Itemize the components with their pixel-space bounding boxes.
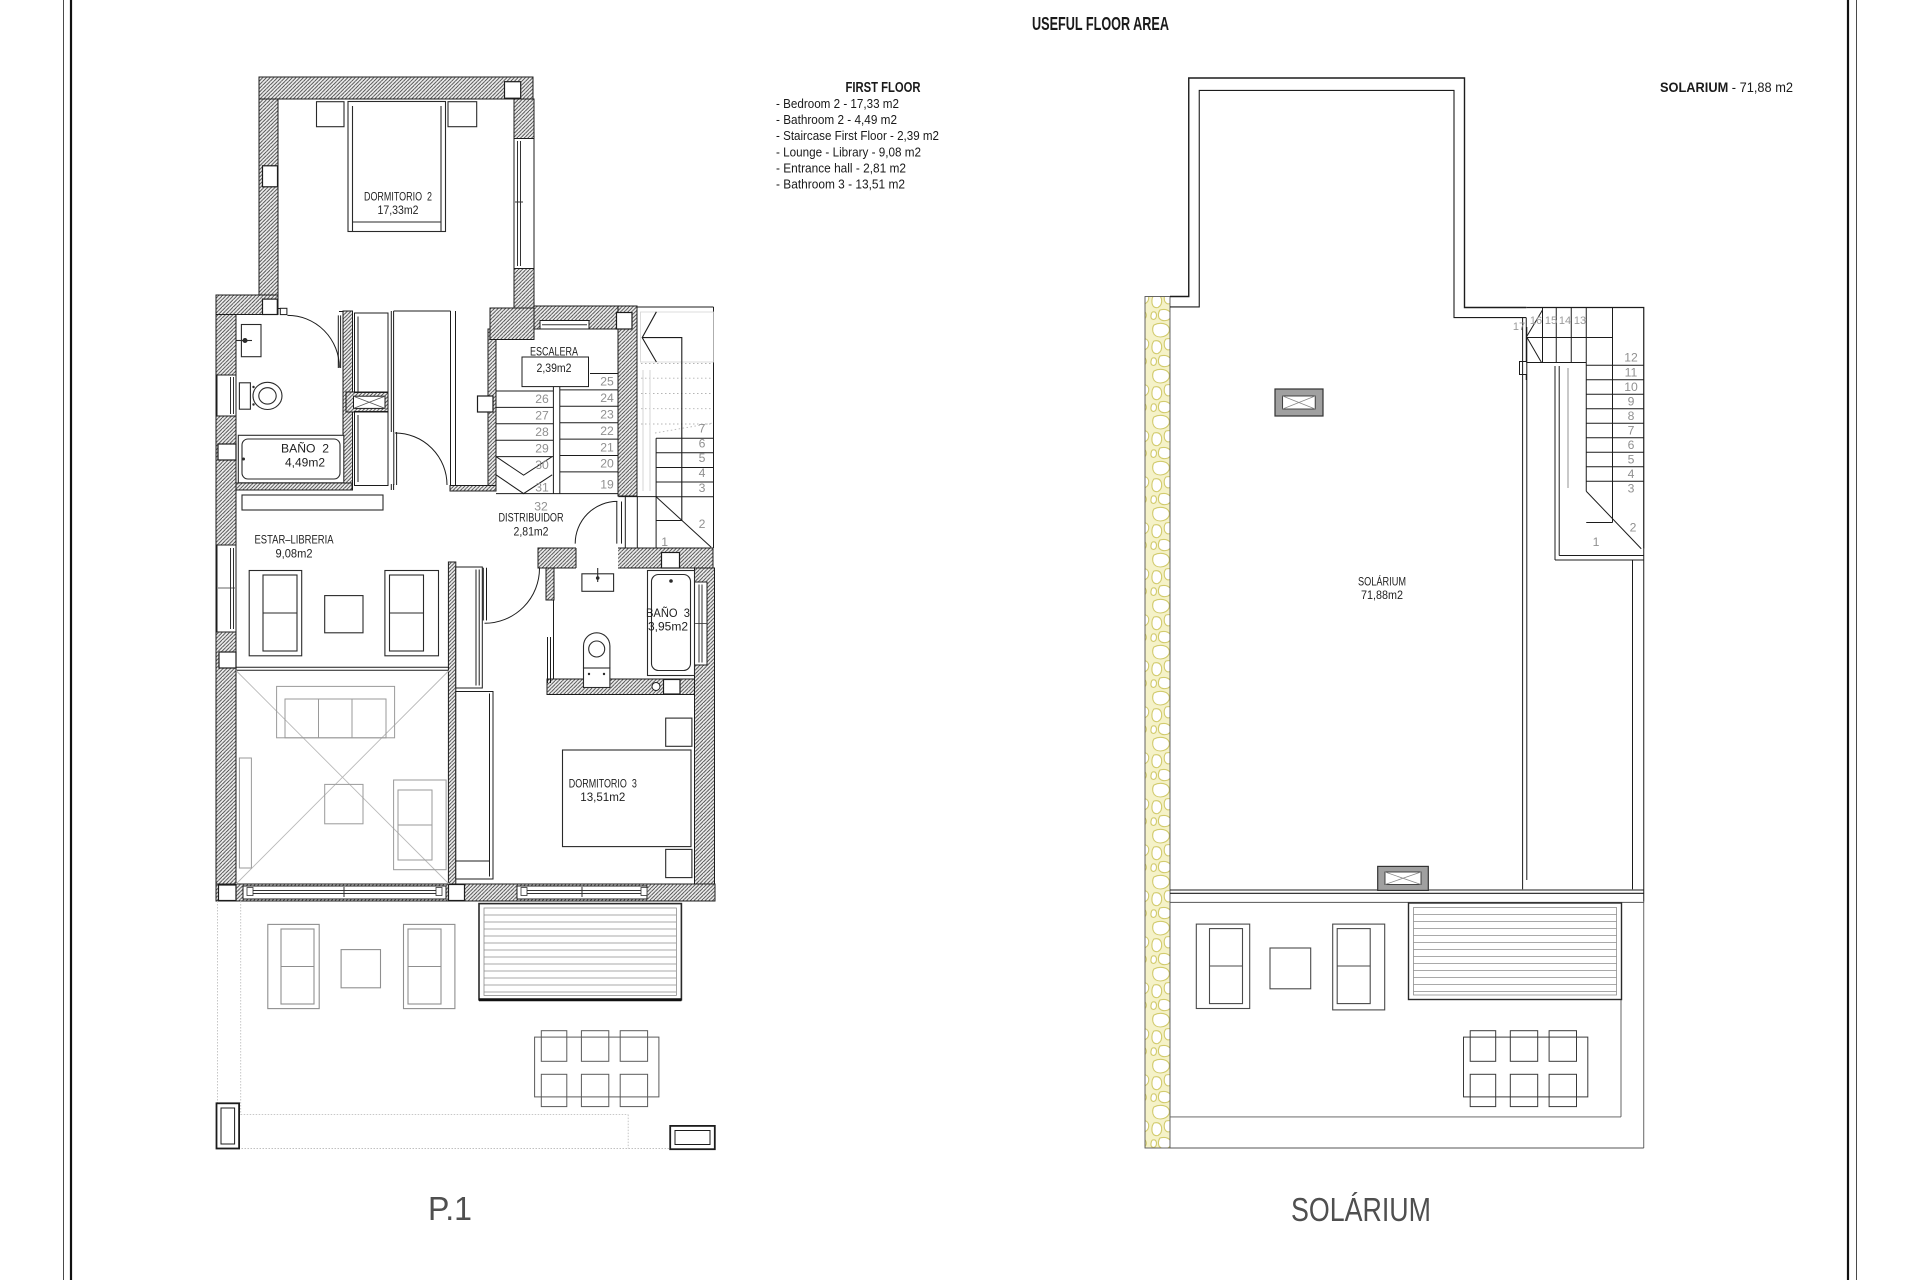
- svg-text:- Staircase First Floor - 2,39: - Staircase First Floor - 2,39 m2: [776, 128, 939, 143]
- svg-text:SOLÁRIUM: SOLÁRIUM: [1358, 574, 1406, 589]
- svg-text:4: 4: [1628, 467, 1635, 481]
- svg-text:3,95m2: 3,95m2: [648, 620, 688, 634]
- svg-text:27: 27: [535, 409, 549, 423]
- svg-text:71,88m2: 71,88m2: [1361, 588, 1403, 602]
- svg-text:4: 4: [699, 466, 706, 480]
- svg-text:24: 24: [600, 391, 614, 405]
- svg-text:26: 26: [535, 392, 549, 406]
- svg-text:31: 31: [535, 481, 549, 495]
- svg-text:21: 21: [600, 440, 614, 454]
- svg-text:BAÑO 2: BAÑO 2: [281, 442, 329, 456]
- svg-text:2: 2: [1630, 521, 1637, 535]
- svg-text:9: 9: [1628, 395, 1635, 409]
- svg-text:P.1: P.1: [428, 1190, 472, 1227]
- svg-text:2,39m2: 2,39m2: [537, 361, 572, 375]
- svg-text:7: 7: [699, 422, 706, 436]
- svg-text:2: 2: [699, 517, 706, 531]
- svg-text:DORMITORIO 2: DORMITORIO 2: [364, 190, 432, 204]
- svg-text:16: 16: [1530, 315, 1542, 327]
- svg-text:13,51m2: 13,51m2: [580, 790, 625, 804]
- svg-text:1: 1: [661, 535, 668, 549]
- svg-text:29: 29: [535, 441, 549, 455]
- svg-text:DISTRIBUIDOR: DISTRIBUIDOR: [499, 511, 564, 525]
- svg-text:14: 14: [1559, 315, 1571, 327]
- svg-text:7: 7: [1628, 424, 1635, 438]
- svg-text:3: 3: [699, 481, 706, 495]
- svg-text:3: 3: [1628, 482, 1635, 496]
- svg-text:- Bathroom 3 - 13,51 m2: - Bathroom 3 - 13,51 m2: [776, 177, 905, 192]
- svg-text:15: 15: [1545, 315, 1557, 327]
- svg-text:11: 11: [1625, 366, 1638, 380]
- svg-text:FIRST FLOOR: FIRST FLOOR: [846, 80, 921, 96]
- svg-text:20: 20: [600, 457, 614, 471]
- svg-text:DORMITORIO 3: DORMITORIO 3: [569, 777, 637, 791]
- svg-text:5: 5: [699, 451, 706, 465]
- svg-text:12: 12: [1624, 351, 1638, 365]
- svg-text:23: 23: [600, 408, 614, 422]
- svg-text:30: 30: [535, 458, 549, 472]
- svg-text:13: 13: [1574, 315, 1586, 327]
- svg-text:17: 17: [1513, 321, 1525, 333]
- svg-text:SOLÁRIUM: SOLÁRIUM: [1291, 1191, 1431, 1228]
- svg-text:- Entrance hall - 2,81 m2: - Entrance hall - 2,81 m2: [776, 161, 906, 176]
- svg-text:9,08m2: 9,08m2: [276, 547, 313, 561]
- svg-text:8: 8: [1628, 409, 1635, 423]
- svg-text:- Bedroom 2 - 17,33 m2: - Bedroom 2 - 17,33 m2: [776, 96, 899, 111]
- svg-text:SOLARIUM - 71,88 m2: SOLARIUM - 71,88 m2: [1660, 80, 1793, 95]
- svg-text:2,81m2: 2,81m2: [514, 525, 549, 539]
- svg-text:5: 5: [1628, 453, 1635, 467]
- svg-text:22: 22: [600, 424, 614, 438]
- svg-text:19: 19: [600, 478, 614, 492]
- svg-text:6: 6: [699, 437, 706, 451]
- svg-text:28: 28: [535, 425, 549, 439]
- svg-text:10: 10: [1624, 380, 1638, 394]
- svg-text:17,33m2: 17,33m2: [378, 203, 419, 217]
- svg-text:1: 1: [1593, 535, 1600, 549]
- svg-text:4,49m2: 4,49m2: [285, 456, 325, 470]
- svg-text:- Lounge - Library - 9,08 m2: - Lounge - Library - 9,08 m2: [776, 145, 921, 160]
- svg-text:25: 25: [600, 375, 614, 389]
- svg-text:- Bathroom 2 - 4,49 m2: - Bathroom 2 - 4,49 m2: [776, 112, 897, 127]
- svg-text:ESTAR–LIBRERIA: ESTAR–LIBRERIA: [255, 533, 335, 547]
- svg-text:BAÑO 3: BAÑO 3: [646, 606, 690, 620]
- svg-text:USEFUL FLOOR AREA: USEFUL FLOOR AREA: [1032, 13, 1169, 34]
- svg-text:ESCALERA: ESCALERA: [530, 345, 579, 359]
- svg-text:6: 6: [1628, 438, 1635, 452]
